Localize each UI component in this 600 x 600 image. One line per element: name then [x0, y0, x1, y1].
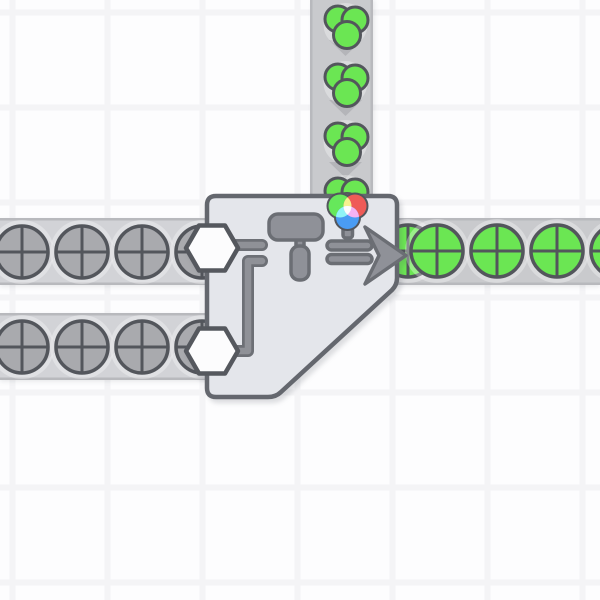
- belt-item-green-circle: [465, 219, 529, 283]
- factory-scene-canvas[interactable]: [0, 0, 600, 600]
- belt-item-green-circle: [405, 219, 469, 283]
- painter-building[interactable]: [186, 195, 406, 398]
- shape-input-hexagon-top: [186, 226, 238, 271]
- belt-item-uncolored-circle: [110, 220, 174, 284]
- belt-item-uncolored-circle: [50, 315, 114, 379]
- shape-input-hexagon-bottom: [186, 329, 238, 374]
- belt-item-uncolored-circle: [50, 220, 114, 284]
- belt-item-green-circle: [525, 219, 589, 283]
- belt-item-uncolored-circle: [110, 315, 174, 379]
